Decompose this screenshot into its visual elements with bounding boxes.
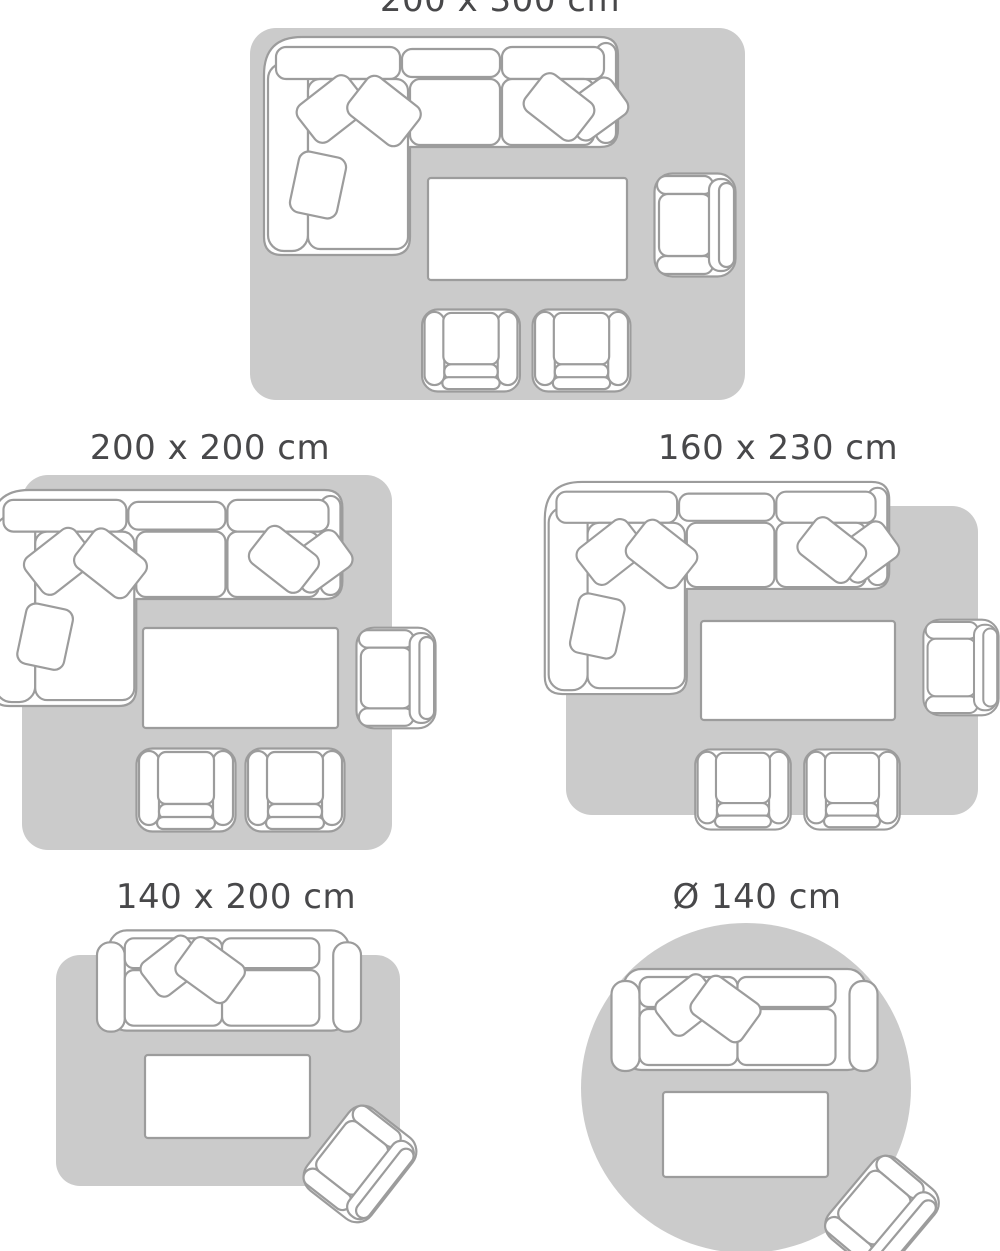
chair-icon [137,749,236,832]
armchair-icon [655,174,736,277]
size-label-200x300: 200 x 300 cm [0,0,1000,18]
scene-160x230 [545,482,999,830]
scene-200x300 [250,28,745,400]
armchair-icon [923,620,998,716]
chair-icon [804,749,900,829]
size-label-d140: Ø 140 cm [557,879,957,915]
chair-icon [246,749,345,832]
loveseat-sofa-icon [612,969,878,1071]
coffee-table-icon [663,1092,828,1177]
scene-d140 [581,923,946,1251]
chair-icon [695,749,791,829]
size-label-160x230: 160 x 230 cm [578,430,978,466]
size-guide-canvas [0,0,1000,1251]
chair-icon [533,309,631,391]
rug-size-guide: 200 x 300 cm 200 x 200 cm 160 x 230 cm 1… [0,0,1000,1251]
size-label-140x200: 140 x 200 cm [36,879,436,915]
armchair-icon [356,628,435,729]
coffee-table-icon [428,178,627,280]
scene-200x200 [0,475,436,850]
coffee-table-icon [143,628,338,728]
loveseat-sofa-icon [97,930,361,1031]
coffee-table-icon [145,1055,310,1138]
chair-icon [422,309,520,391]
scene-140x200 [56,930,424,1229]
size-label-200x200: 200 x 200 cm [10,430,410,466]
coffee-table-icon [701,621,895,720]
